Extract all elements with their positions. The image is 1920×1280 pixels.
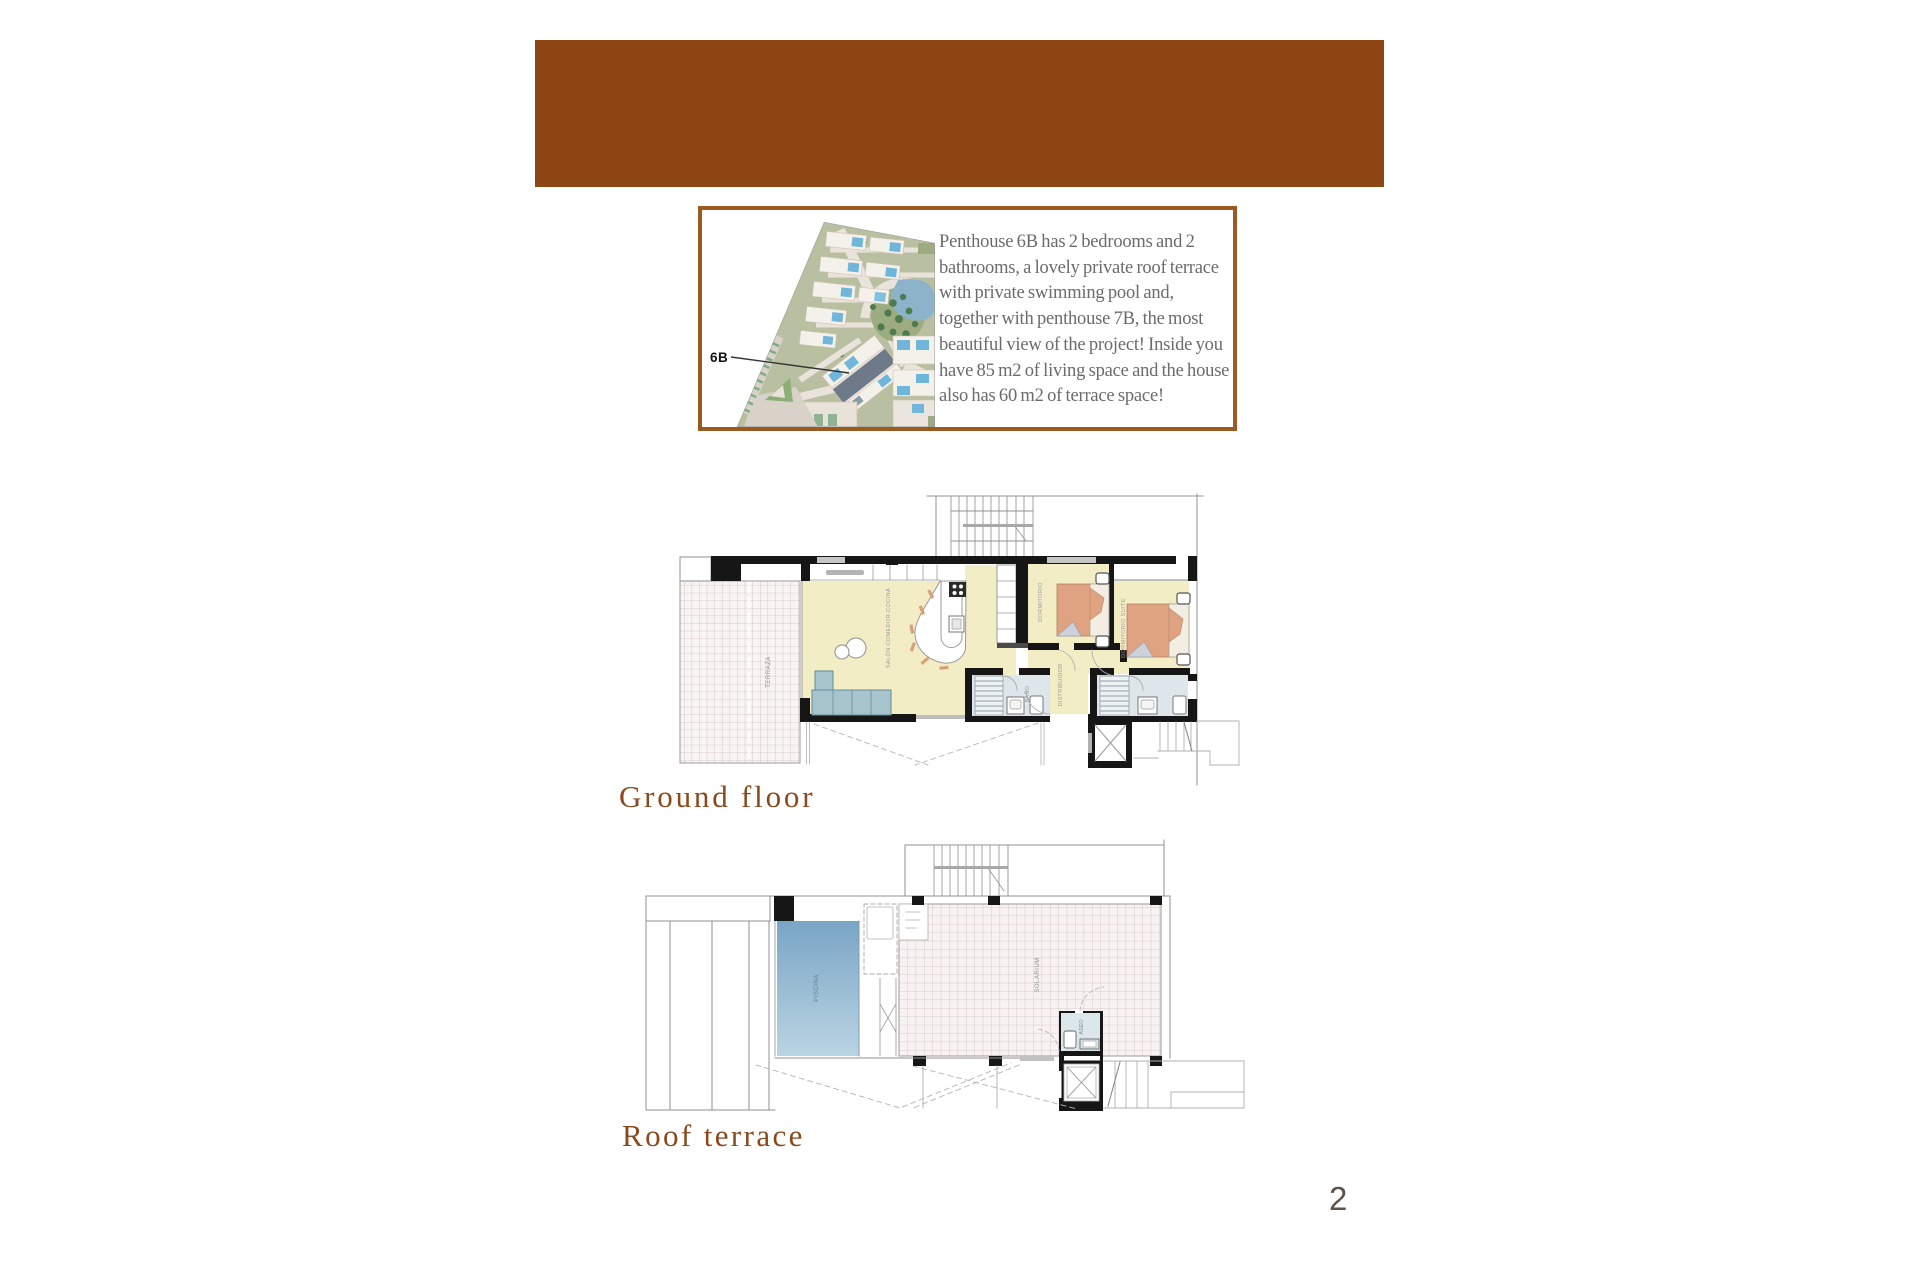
svg-text:BAÑO: BAÑO	[1024, 685, 1031, 702]
svg-text:DORMITORIO SUITE: DORMITORIO SUITE	[1121, 598, 1127, 658]
svg-text:TERRAZA: TERRAZA	[766, 656, 772, 688]
svg-text:ASEO: ASEO	[1079, 1019, 1085, 1035]
svg-text:SOLARIUM: SOLARIUM	[1035, 957, 1041, 992]
svg-text:PISCINA: PISCINA	[814, 974, 820, 1002]
svg-text:DISTRIBUIDOR: DISTRIBUIDOR	[1058, 663, 1064, 706]
svg-text:SALÓN COMEDOR-COCINA: SALÓN COMEDOR-COCINA	[885, 588, 892, 668]
svg-text:DORMITORIO: DORMITORIO	[1038, 582, 1044, 622]
svg-text:6B: 6B	[710, 350, 728, 365]
